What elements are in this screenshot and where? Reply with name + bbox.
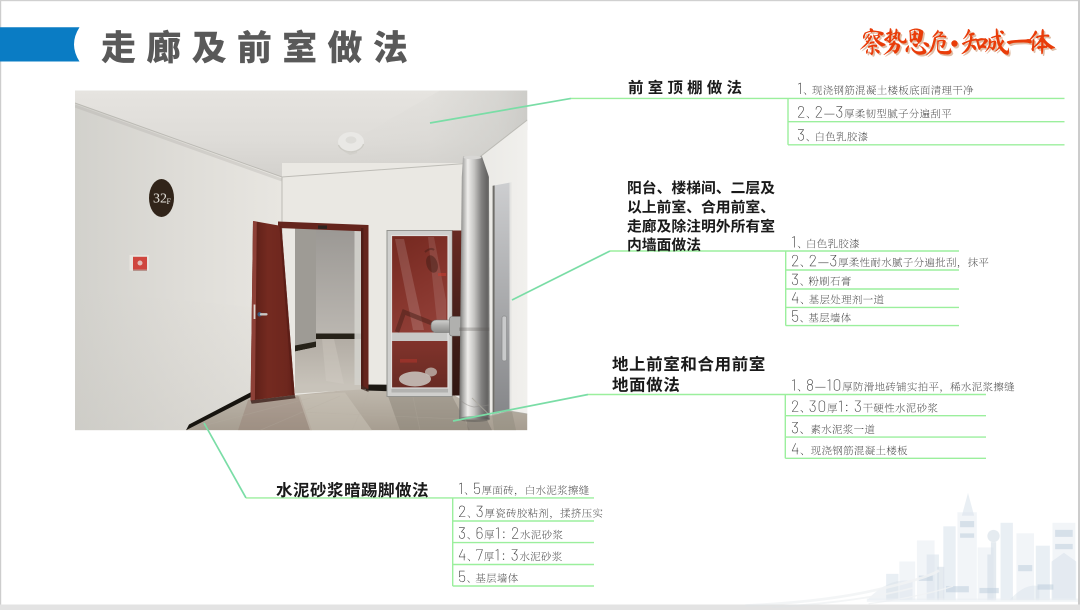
svg-text:F: F bbox=[167, 197, 172, 206]
svg-text:32: 32 bbox=[153, 192, 167, 207]
